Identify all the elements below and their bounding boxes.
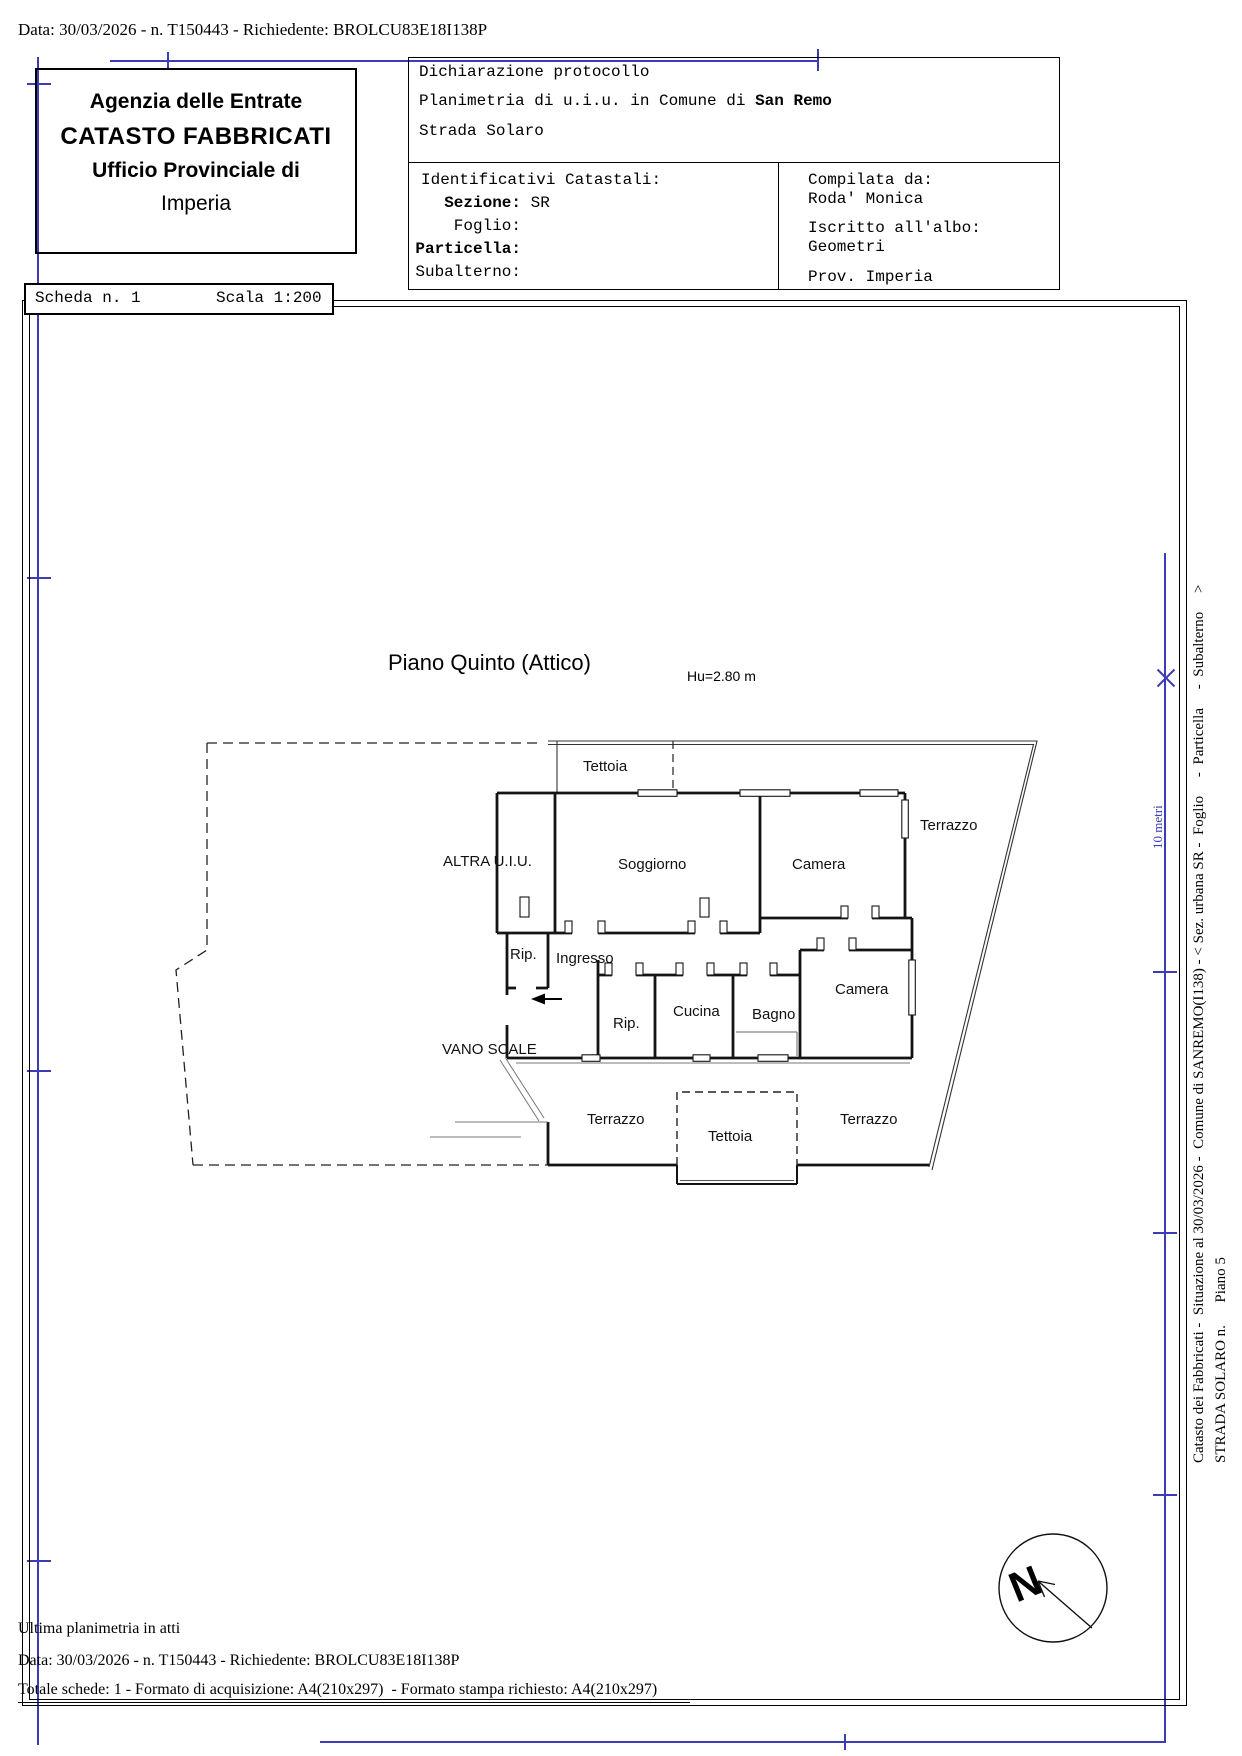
tettoia-bottom-solid — [677, 1165, 797, 1184]
north-arrow: N — [999, 1534, 1107, 1642]
door-jambs — [520, 897, 879, 975]
footer-rule — [18, 1702, 690, 1703]
compass-needle — [1038, 1581, 1092, 1628]
walls — [497, 793, 929, 1165]
terrace-edge — [548, 741, 1037, 1170]
footer-totale: Totale schede: 1 - Formato di acquisizio… — [18, 1681, 657, 1699]
floor-plan: N — [0, 0, 1242, 1756]
bath-inset — [736, 1032, 797, 1056]
scheda-number: Scheda n. 1 — [35, 285, 141, 312]
footer-ultima: Ultima planimetria in atti — [18, 1620, 180, 1638]
side-caption-strada: STRADA SOLARO n. Piano 5 — [1213, 553, 1230, 1463]
side-caption-catasto: Catasto dei Fabbricati - Situazione al 3… — [1191, 553, 1208, 1463]
scheda-box: Scheda n. 1 Scala 1:200 — [24, 283, 334, 315]
stair-lines — [430, 1058, 910, 1137]
dashed-boundary — [176, 743, 548, 1165]
entrance-arrow-icon — [531, 994, 562, 1005]
scala-value: Scala 1:200 — [216, 285, 322, 312]
footer-request-line: Data: 30/03/2026 - n. T150443 - Richiede… — [18, 1652, 459, 1670]
windows — [582, 790, 915, 1062]
tettoia-bottom-dashed — [677, 1092, 797, 1165]
